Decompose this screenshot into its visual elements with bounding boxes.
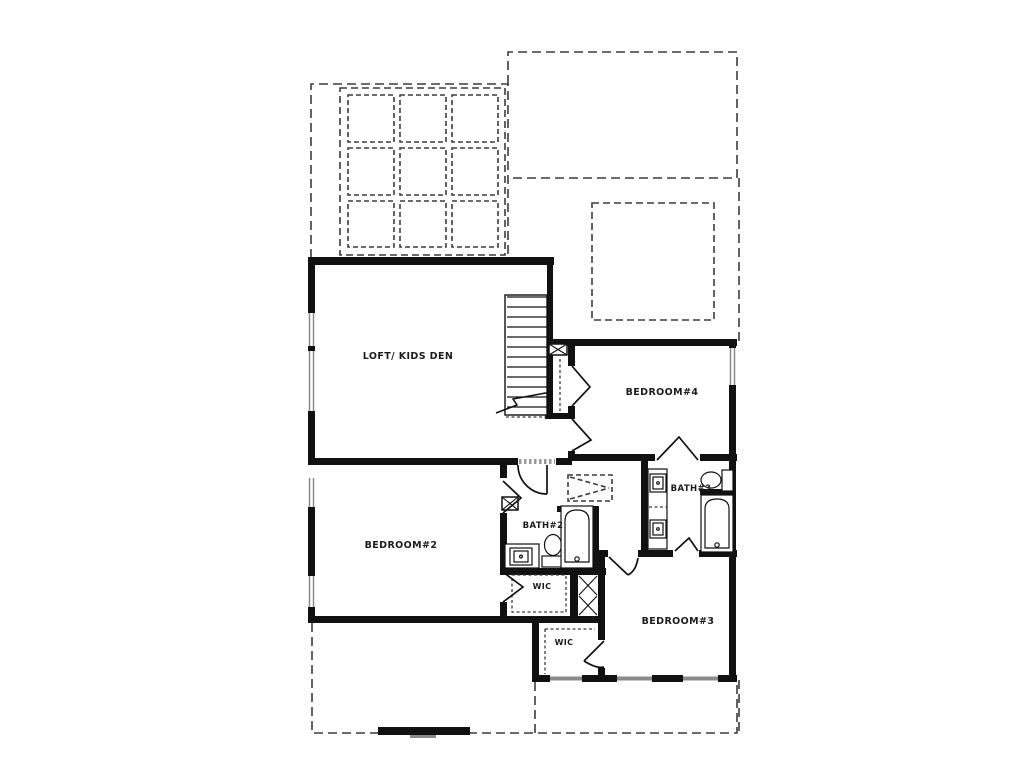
wic-upper-shelves [512, 575, 566, 612]
floor-plan-page: LOFT/ KIDS DEN BEDROOM#4 BEDROOM#2 BEDRO… [0, 0, 1024, 768]
bedroom4-window [731, 348, 735, 385]
bath3-tub [701, 495, 733, 552]
bath3-double-vanity [648, 469, 667, 549]
chase-box-hall [549, 344, 567, 355]
wic-lower-door [584, 641, 604, 667]
label-bedroom3: BEDROOM#3 [642, 616, 715, 627]
bath2-vanity-sink [505, 544, 539, 568]
label-bath2: BATH#2 [523, 521, 564, 531]
label-bath3: BATH#3 [671, 484, 712, 494]
trellis-grid-dashed [340, 88, 505, 255]
bath2-tub [561, 506, 593, 568]
staircase [496, 295, 551, 417]
bath2-door [518, 465, 547, 494]
label-bedroom2: BEDROOM#2 [365, 540, 438, 551]
loft-window [310, 313, 314, 411]
label-bedroom4: BEDROOM#4 [626, 387, 699, 398]
label-loft: LOFT/ KIDS DEN [363, 351, 453, 362]
bath3-bedroom3-door [675, 538, 698, 551]
bedroom4-entry-door [572, 419, 591, 451]
wic-lower-shelves [545, 629, 595, 674]
attic-access [568, 475, 612, 501]
label-wic-upper: WIC [533, 582, 552, 591]
bedroom4-bath3-door [657, 437, 698, 460]
laundry-chase [579, 576, 597, 615]
bedroom4-closet-door [572, 366, 590, 406]
bath2-fixtures [505, 506, 593, 568]
label-wic-lower: WIC [555, 638, 574, 647]
lower-level-wall-bar [378, 727, 470, 738]
floor-plan-drawing: LOFT/ KIDS DEN BEDROOM#4 BEDROOM#2 BEDRO… [0, 0, 1024, 768]
bedroom3-windows [550, 677, 718, 681]
bedroom3-entry-door [609, 557, 638, 575]
wic-upper-door [503, 572, 523, 602]
